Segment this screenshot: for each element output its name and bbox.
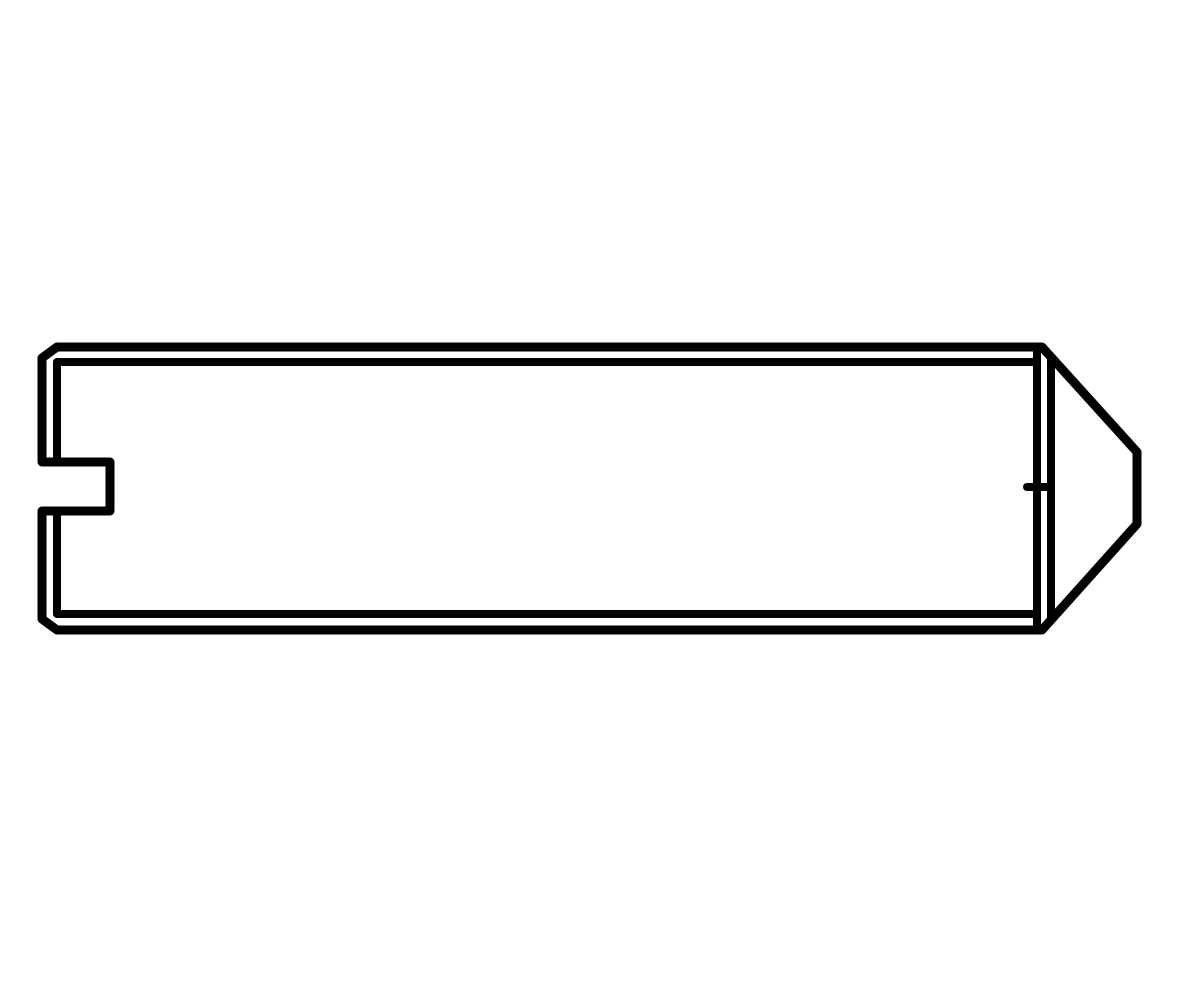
top-chamfer-edge-line xyxy=(57,362,1035,462)
bottom-chamfer-edge-line xyxy=(57,511,1035,614)
set-screw-technical-drawing xyxy=(0,0,1200,1000)
screw-silhouette-with-slot-and-cone-point xyxy=(42,347,1137,630)
drawing-canvas xyxy=(0,0,1200,1000)
